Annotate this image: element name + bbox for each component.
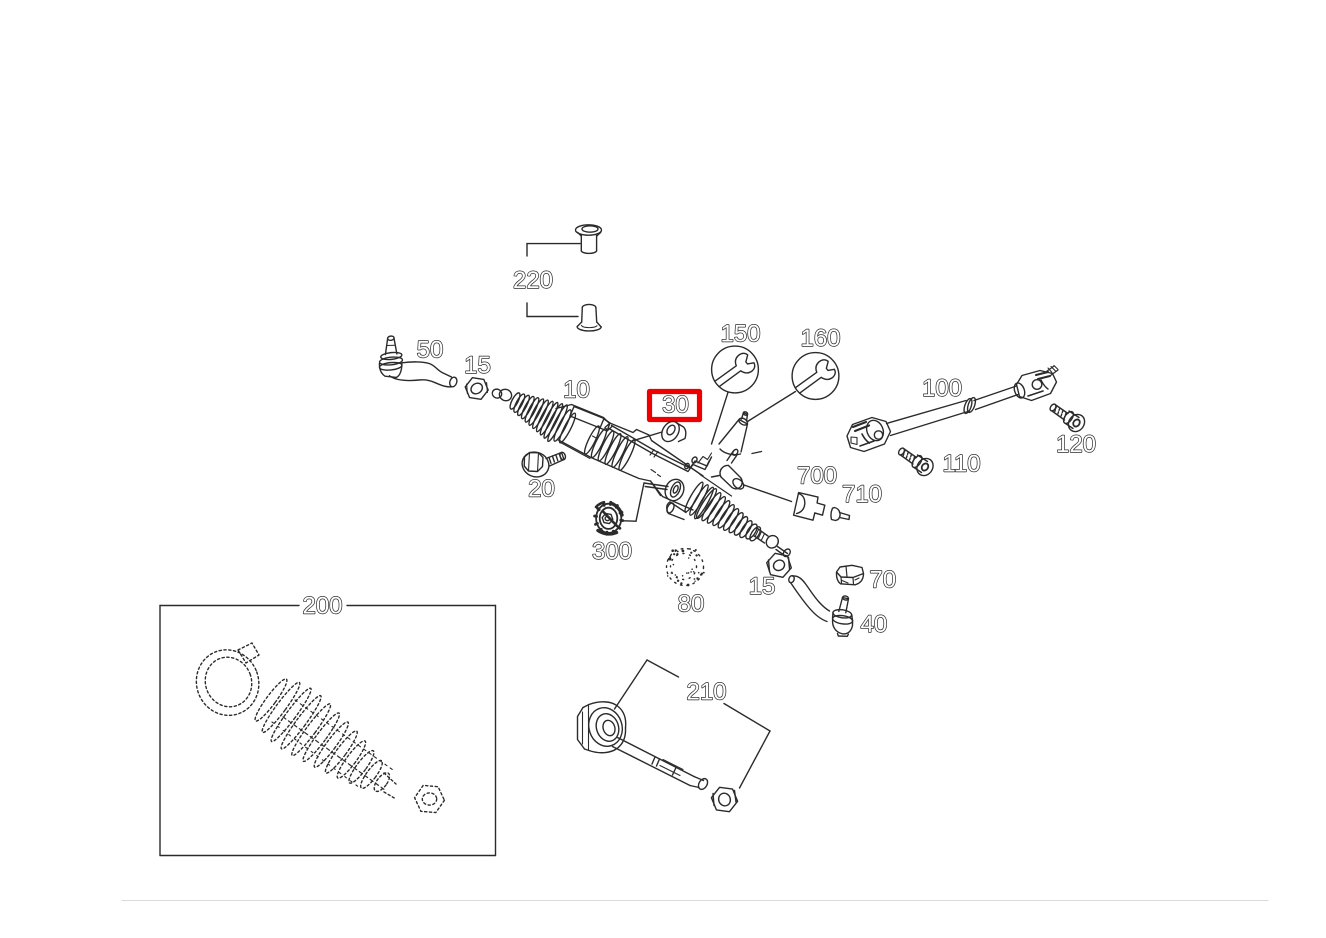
svg-text:15: 15 xyxy=(464,352,491,379)
svg-text:15: 15 xyxy=(749,573,776,600)
svg-text:220: 220 xyxy=(513,267,553,294)
svg-text:100: 100 xyxy=(922,375,962,402)
svg-text:80: 80 xyxy=(678,591,705,618)
svg-text:30: 30 xyxy=(662,392,689,419)
svg-text:40: 40 xyxy=(861,611,888,638)
svg-text:150: 150 xyxy=(720,321,760,348)
svg-text:70: 70 xyxy=(869,567,896,594)
svg-text:700: 700 xyxy=(797,463,837,490)
svg-text:160: 160 xyxy=(800,325,840,352)
svg-text:50: 50 xyxy=(417,337,444,364)
svg-text:710: 710 xyxy=(842,481,882,508)
svg-text:20: 20 xyxy=(528,476,555,503)
svg-text:210: 210 xyxy=(686,679,726,706)
svg-text:120: 120 xyxy=(1056,431,1096,458)
svg-text:110: 110 xyxy=(942,451,980,478)
svg-text:300: 300 xyxy=(592,538,632,565)
svg-text:10: 10 xyxy=(563,377,590,404)
svg-text:200: 200 xyxy=(302,593,342,620)
